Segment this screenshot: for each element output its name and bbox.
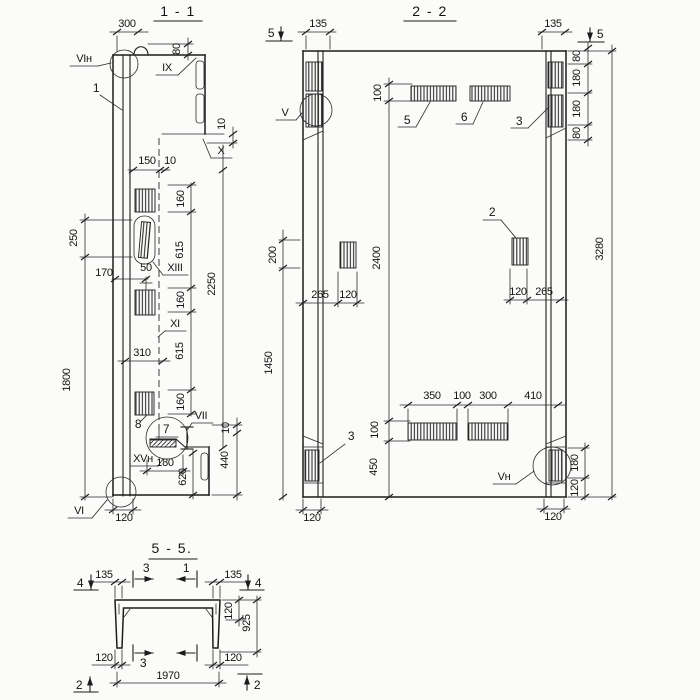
dim-450: 450 bbox=[368, 458, 380, 476]
label-ix-text: IX bbox=[162, 62, 173, 74]
dim-120-bottom-left: 120 bbox=[303, 512, 321, 524]
cut-1-top-text: 1 bbox=[183, 561, 190, 575]
dim-80-b: 80 bbox=[571, 127, 583, 139]
paper-background bbox=[0, 0, 700, 700]
dim-100-top: 100 bbox=[372, 84, 384, 102]
dim-1450: 1450 bbox=[263, 351, 275, 374]
embedded-plate bbox=[135, 290, 155, 315]
label-vin-text: VIн bbox=[76, 53, 92, 65]
dim-250: 250 bbox=[68, 229, 80, 247]
dim-440: 440 bbox=[219, 451, 231, 469]
cut-2-left-text: 2 bbox=[76, 678, 83, 692]
callout-6-text: 6 bbox=[461, 110, 468, 124]
label-vi-text: VI bbox=[74, 505, 84, 517]
dim-180-bottom-right: 180 bbox=[569, 454, 581, 472]
dim-80-a: 80 bbox=[571, 50, 583, 62]
embedded-plate bbox=[340, 242, 356, 268]
dim-180: 180 bbox=[156, 457, 174, 469]
dim-2250: 2250 bbox=[206, 272, 218, 295]
blueprint-page: 1 - 1 bbox=[0, 0, 700, 700]
dim-135-right: 135 bbox=[544, 18, 562, 30]
dim-160-c: 160 bbox=[175, 393, 187, 411]
dim-300: 300 bbox=[118, 18, 136, 30]
dim-1970: 1970 bbox=[156, 670, 179, 682]
label-xiii-text: XIII bbox=[167, 262, 183, 274]
cut-3-top-text: 3 bbox=[143, 561, 150, 575]
embedded-plate bbox=[306, 62, 322, 91]
embedded-plate bbox=[512, 238, 528, 265]
dim-120-bottom-right: 120 bbox=[224, 652, 242, 664]
label-v-text: V bbox=[281, 107, 289, 119]
cut-5-right-text: 5 bbox=[597, 27, 604, 41]
callout-8-text: 8 bbox=[135, 417, 142, 431]
dim-350: 350 bbox=[423, 390, 441, 402]
label-vii-text: VII bbox=[195, 410, 208, 422]
label-vn-text: Vн bbox=[498, 471, 511, 483]
label-xvn-text: XVн bbox=[133, 453, 153, 465]
embedded-plate bbox=[135, 392, 154, 415]
dim-265-right: 265 bbox=[535, 286, 553, 298]
embedded-bar bbox=[470, 86, 510, 101]
dim-150: 150 bbox=[138, 155, 156, 167]
dim-120-bottom-right-v: 120 bbox=[569, 479, 581, 497]
dim-120: 120 bbox=[115, 512, 133, 524]
cut-3-bottom-text: 3 bbox=[140, 656, 147, 670]
dim-120-bottom-left: 120 bbox=[95, 652, 113, 664]
dim-120-left: 120 bbox=[339, 289, 357, 301]
section-2-2-title: 2 - 2 bbox=[412, 3, 448, 19]
dim-3280: 3280 bbox=[594, 237, 606, 260]
dim-120-right: 120 bbox=[509, 286, 527, 298]
dim-2400: 2400 bbox=[371, 246, 383, 269]
label-xi-text: XI bbox=[170, 318, 180, 330]
embedded-plate bbox=[306, 94, 322, 127]
embedded-bar bbox=[468, 423, 508, 440]
embedded-plate bbox=[548, 62, 563, 88]
dim-50: 50 bbox=[140, 262, 152, 274]
dim-180-b: 180 bbox=[571, 100, 583, 118]
embedded-plate bbox=[305, 450, 319, 481]
dim-10-top: 10 bbox=[164, 155, 176, 167]
dim-170: 170 bbox=[95, 267, 113, 279]
dim-135-left: 135 bbox=[309, 18, 327, 30]
dim-265-left: 265 bbox=[311, 289, 329, 301]
dim-135-left: 135 bbox=[95, 569, 113, 581]
embedded-bar bbox=[411, 86, 456, 101]
callout-2-text: 2 bbox=[489, 205, 496, 219]
dim-120-bottom: 120 bbox=[544, 511, 562, 523]
dim-160-b: 160 bbox=[175, 291, 187, 309]
embedded-plate bbox=[549, 450, 562, 481]
blueprint-canvas: 1 - 1 bbox=[0, 0, 700, 700]
dim-300: 300 bbox=[479, 390, 497, 402]
cut-4-left-text: 4 bbox=[77, 576, 84, 590]
callout-5-text: 5 bbox=[404, 113, 411, 127]
dim-10-bottom-right: 10 bbox=[220, 422, 232, 434]
embedded-plate bbox=[548, 95, 563, 127]
dim-1800: 1800 bbox=[61, 368, 73, 391]
dim-160-a: 160 bbox=[175, 190, 187, 208]
dim-100-mid: 100 bbox=[453, 390, 471, 402]
dim-310: 310 bbox=[133, 347, 151, 359]
dim-10-top-right: 10 bbox=[216, 118, 228, 130]
cut-2-right-text: 2 bbox=[254, 678, 261, 692]
dim-120-flange: 120 bbox=[223, 602, 235, 620]
cut-4-right-text: 4 bbox=[255, 576, 262, 590]
callout-7-text: 7 bbox=[163, 422, 170, 436]
dim-925: 925 bbox=[241, 614, 253, 632]
dim-410: 410 bbox=[524, 390, 542, 402]
section-1-1-title: 1 - 1 bbox=[160, 3, 196, 19]
dim-80: 80 bbox=[171, 43, 183, 55]
support-ledge-hatch bbox=[150, 440, 176, 447]
callout-3-bottom-text: 3 bbox=[348, 429, 355, 443]
dim-180-a: 180 bbox=[571, 69, 583, 87]
dim-200: 200 bbox=[267, 246, 279, 264]
dim-615-b: 615 bbox=[174, 342, 186, 360]
embedded-plate bbox=[135, 189, 155, 212]
cut-5-left-text: 5 bbox=[268, 26, 275, 40]
dim-615-a: 615 bbox=[174, 241, 186, 259]
callout-1-text: 1 bbox=[93, 81, 100, 95]
dim-620: 620 bbox=[177, 468, 189, 486]
embedded-bar bbox=[408, 423, 457, 440]
label-x-text: X bbox=[217, 145, 225, 157]
section-5-5-title: 5 - 5. bbox=[152, 540, 193, 556]
callout-3-top-text: 3 bbox=[516, 114, 523, 128]
dim-100-bottom: 100 bbox=[369, 421, 381, 439]
dim-135-right: 135 bbox=[224, 569, 242, 581]
